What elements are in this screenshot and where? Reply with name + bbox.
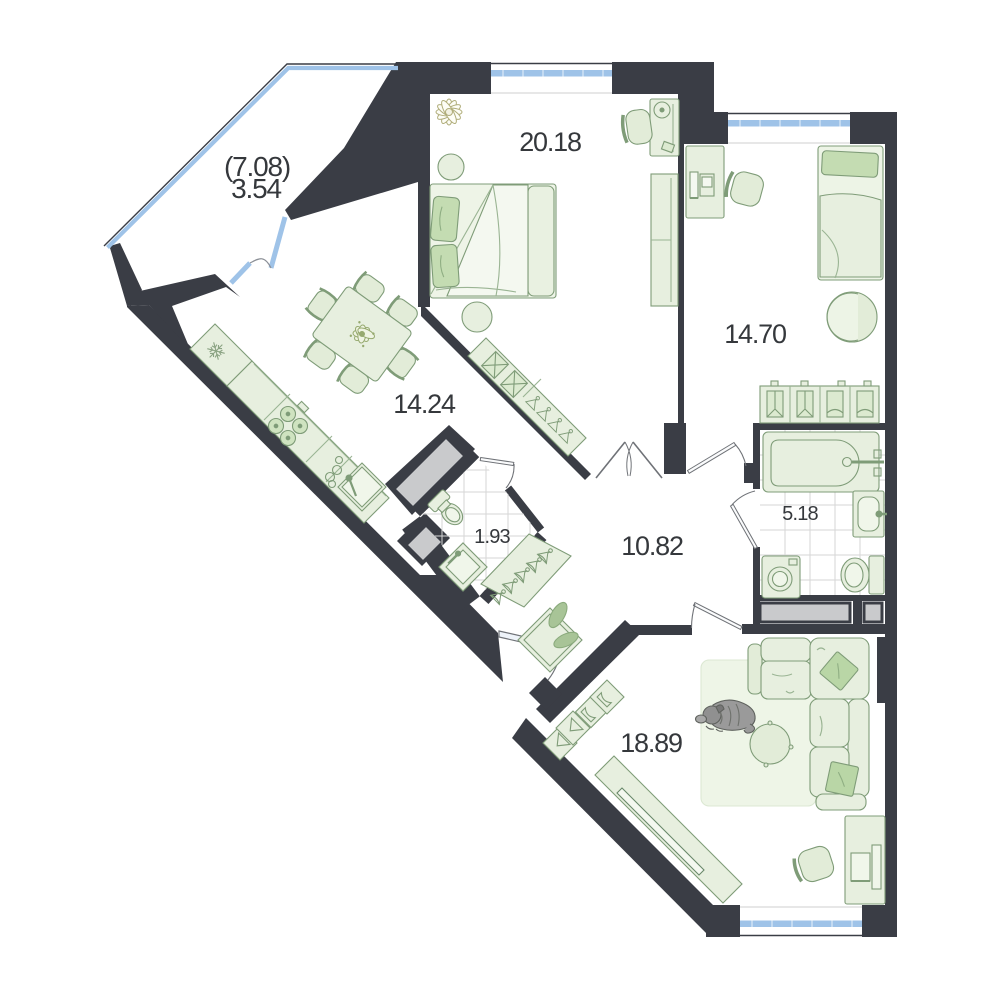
svg-text:5.18: 5.18 — [782, 503, 818, 525]
svg-text:10.82: 10.82 — [621, 531, 683, 561]
svg-text:3.54: 3.54 — [231, 173, 281, 204]
svg-text:20.18: 20.18 — [519, 127, 581, 157]
svg-text:1.93: 1.93 — [474, 526, 510, 548]
svg-text:18.89: 18.89 — [620, 728, 682, 758]
svg-text:14.24: 14.24 — [393, 389, 456, 419]
svg-text:14.70: 14.70 — [724, 319, 786, 349]
